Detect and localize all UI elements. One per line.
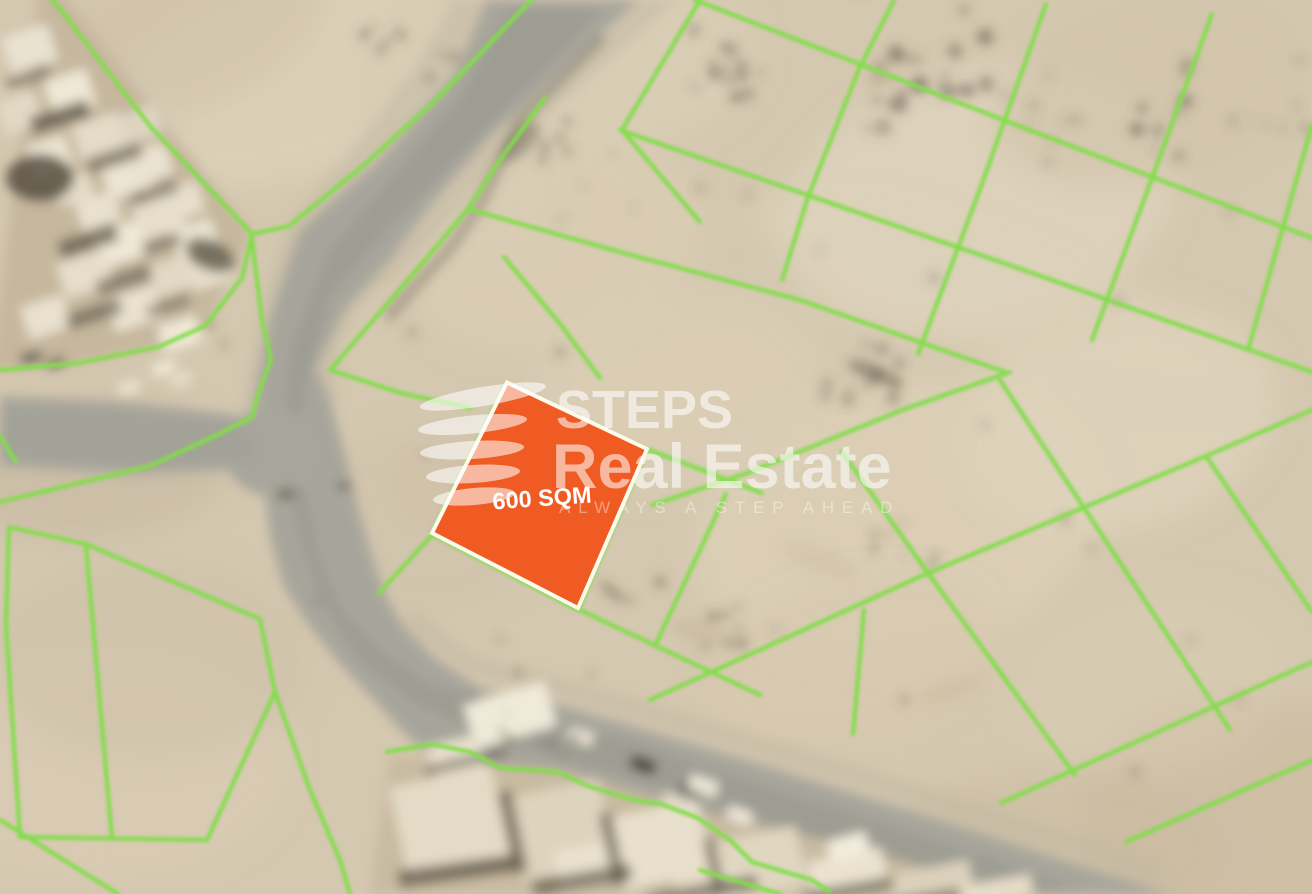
svg-text:Real Estate: Real Estate [552,432,892,502]
svg-text:STEPS: STEPS [556,380,733,440]
svg-text:ALWAYS A STEP AHEAD: ALWAYS A STEP AHEAD [559,498,900,517]
